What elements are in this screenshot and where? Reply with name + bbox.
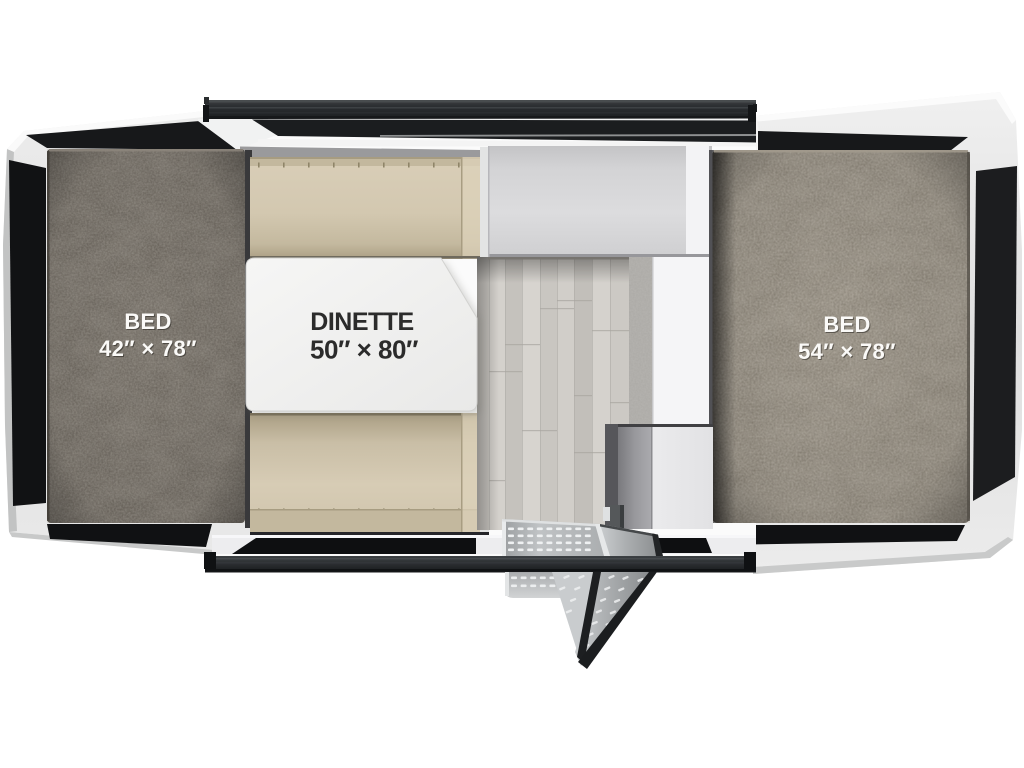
svg-text:42″ × 78″: 42″ × 78″ bbox=[99, 336, 197, 361]
svg-text:54″ × 78″: 54″ × 78″ bbox=[798, 339, 896, 364]
svg-text:DINETTE: DINETTE bbox=[310, 308, 413, 336]
svg-text:50″ × 80″: 50″ × 80″ bbox=[310, 335, 418, 365]
svg-text:BED: BED bbox=[823, 312, 870, 337]
svg-text:BED: BED bbox=[124, 309, 171, 334]
